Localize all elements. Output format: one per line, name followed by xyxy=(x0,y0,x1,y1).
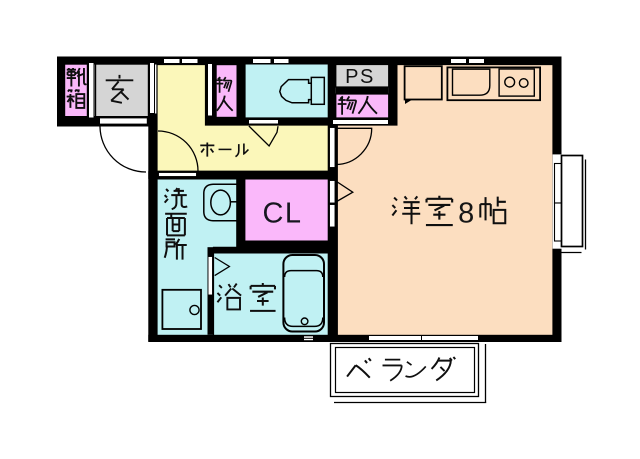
svg-text:PS: PS xyxy=(345,66,375,88)
svg-text:8: 8 xyxy=(458,197,474,229)
svg-text:CL: CL xyxy=(262,198,302,230)
